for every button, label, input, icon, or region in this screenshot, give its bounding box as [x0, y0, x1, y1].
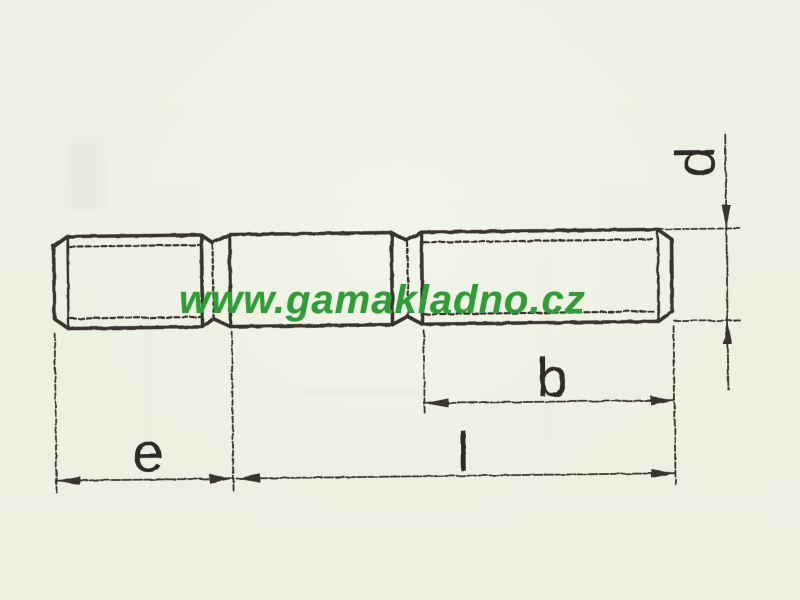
label-l: l [456, 420, 469, 483]
arrowhead [209, 474, 233, 483]
label-e: e [132, 420, 164, 483]
watermark-url-text: www.gamakladno.cz [179, 280, 586, 320]
left-chamfer-line [67, 237, 68, 329]
scanned-catalog-page: e l b d www.gamakladno.cz [0, 0, 800, 600]
dimension-l [236, 469, 675, 483]
arrowhead [651, 469, 675, 478]
label-d: d [663, 146, 726, 178]
arrowhead [424, 398, 448, 407]
right-chamfer-line [657, 229, 658, 321]
arrowhead [56, 476, 80, 485]
arrowhead [722, 204, 731, 228]
arrowhead [650, 396, 674, 405]
arrowhead [236, 474, 260, 483]
arrowhead [723, 320, 732, 344]
label-b: b [536, 345, 568, 408]
